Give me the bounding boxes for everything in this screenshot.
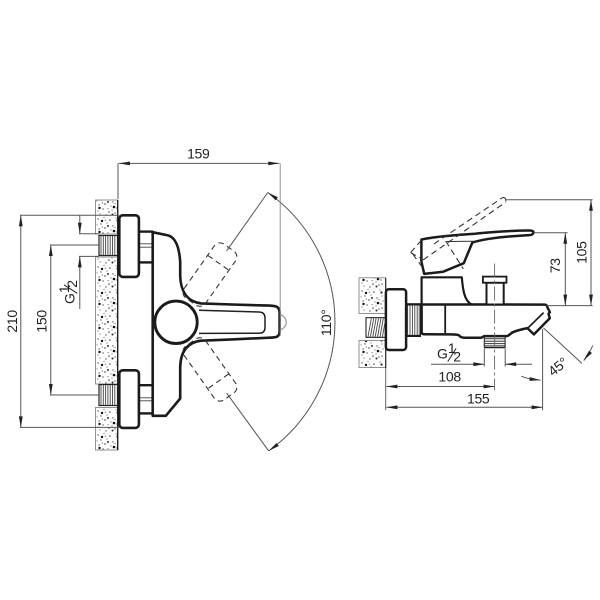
svg-text:2: 2 <box>64 280 80 288</box>
svg-text:73: 73 <box>547 258 563 273</box>
svg-text:159: 159 <box>187 146 210 162</box>
svg-text:155: 155 <box>467 391 490 407</box>
svg-text:110°: 110° <box>318 309 334 336</box>
svg-text:210: 210 <box>4 310 20 333</box>
svg-text:2: 2 <box>453 348 461 364</box>
svg-text:105: 105 <box>573 241 589 264</box>
svg-text:45°: 45° <box>545 354 571 379</box>
svg-text:G: G <box>61 293 77 304</box>
svg-text:150: 150 <box>34 310 50 333</box>
svg-text:G: G <box>437 346 448 362</box>
svg-text:108: 108 <box>438 369 461 385</box>
